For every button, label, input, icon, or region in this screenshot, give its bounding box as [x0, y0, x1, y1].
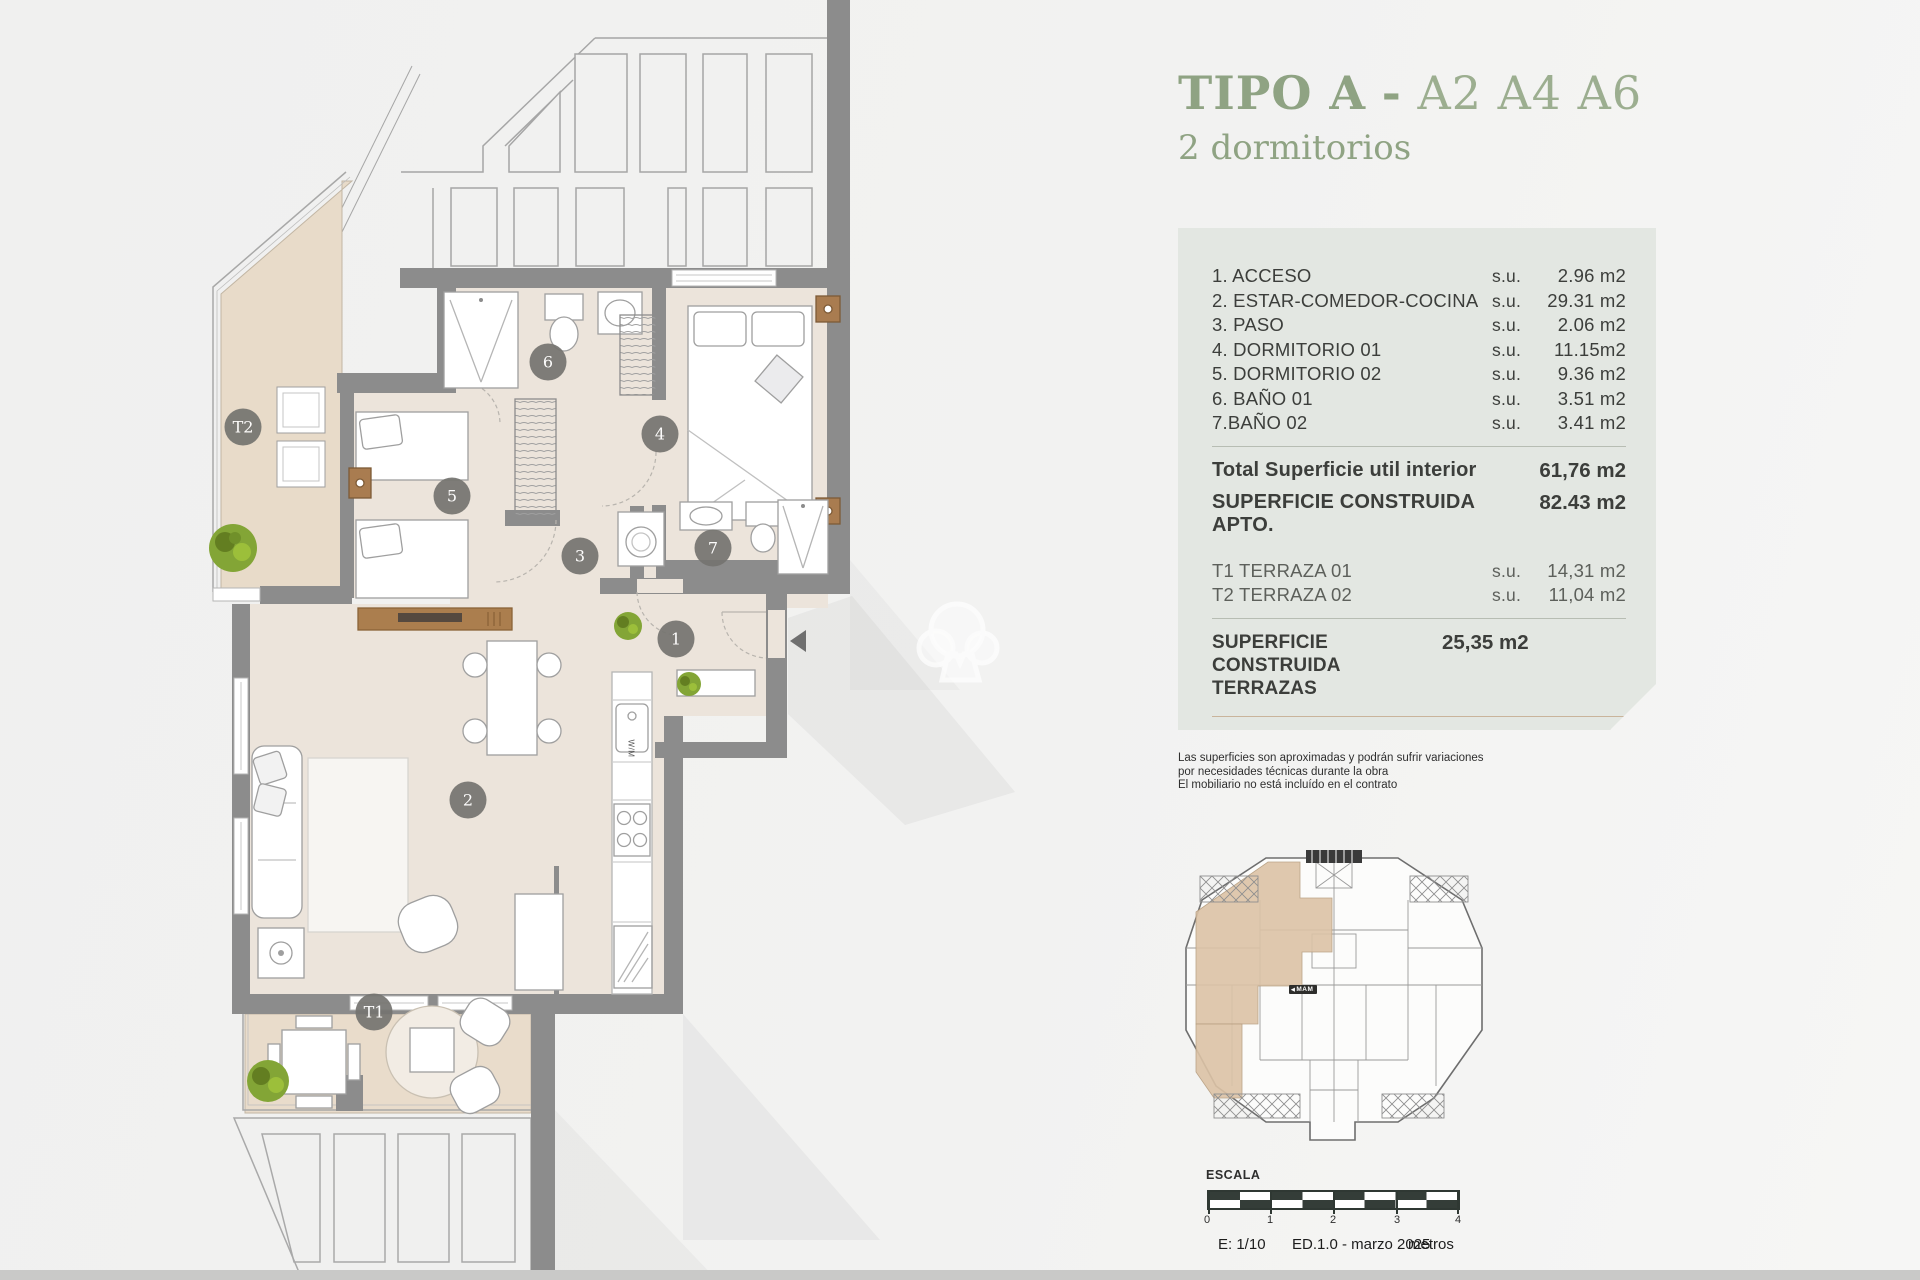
builder-logo: ◀ MAM	[1289, 985, 1317, 994]
surfaces-panel: 1. ACCESOs.u.2.96 m2 2. ESTAR-COMEDOR-CO…	[1178, 228, 1656, 730]
badge-terrace-t2: T2	[225, 409, 262, 446]
badge-terrace-t1: T1	[356, 994, 393, 1031]
divider	[1212, 618, 1626, 619]
room-row: 6. BAÑO 01s.u.3.51 m2	[1212, 387, 1626, 412]
disclaimer: Las superficies son aproximadas y podrán…	[1178, 752, 1484, 793]
washer-label: W/M	[626, 740, 635, 758]
scale-ratio: E: 1/10	[1218, 1236, 1266, 1253]
room-row: 2. ESTAR-COMEDOR-COCINAs.u.29.31 m2	[1212, 289, 1626, 314]
badge-room-6: 6	[530, 344, 567, 381]
unit-codes: A2 A4 A6	[1417, 66, 1642, 120]
type-name: TIPO A	[1178, 66, 1366, 120]
scale-bar	[1207, 1190, 1460, 1210]
room-row: 7.BAÑO 02s.u.3.41 m2	[1212, 411, 1626, 436]
room-row: 1. ACCESOs.u.2.96 m2	[1212, 264, 1626, 289]
scale-tick-1: 1	[1267, 1214, 1273, 1226]
construida-row: SUPERFICIE CONSTRUIDA APTO. 82.43 m2	[1212, 491, 1626, 537]
room-row: 5. DORMITORIO 02s.u.9.36 m2	[1212, 362, 1626, 387]
room-row: 4. DORMITORIO 01s.u.11.15m2	[1212, 338, 1626, 363]
floorplan-sheet: T2 6 4 5 3 7 1 2 T1 W/M TIPO A - A2 A4 A…	[0, 0, 1920, 1280]
planter-strip	[234, 1118, 531, 1277]
total-util-row: Total Superficie util interior 61,76 m2	[1212, 459, 1626, 483]
badge-room-4: 4	[642, 416, 679, 453]
neighbour-structures	[334, 38, 827, 268]
scale-unit: metros	[1408, 1236, 1454, 1253]
terrace-row: T2 TERRAZA 02s.u.11,04 m2	[1212, 583, 1626, 608]
keyplan	[1186, 850, 1482, 1140]
scale-title: ESCALA	[1206, 1168, 1260, 1182]
page-title: TIPO A - A2 A4 A6	[1178, 66, 1642, 120]
room-row: 3. PASOs.u.2.06 m2	[1212, 313, 1626, 338]
badge-room-5: 5	[434, 478, 471, 515]
page-subtitle: 2 dormitorios	[1178, 128, 1411, 168]
badge-room-7: 7	[695, 530, 732, 567]
scale-tick-3: 3	[1394, 1214, 1400, 1226]
terrace-row: T1 TERRAZA 01s.u.14,31 m2	[1212, 559, 1626, 584]
badge-room-2: 2	[450, 782, 487, 819]
scale-tick-2: 2	[1330, 1214, 1336, 1226]
scale-tick-0: 0	[1204, 1214, 1210, 1226]
logo-arrow-icon: ◀	[1291, 987, 1295, 993]
badge-room-1: 1	[658, 621, 695, 658]
page-footer-strip	[0, 1270, 1920, 1280]
divider	[1212, 716, 1626, 717]
construida-terrazas-row: SUPERFICIE CONSTRUIDA TERRAZAS 25,35 m2	[1212, 631, 1626, 700]
scale-tick-4: 4	[1455, 1214, 1461, 1226]
badge-room-3: 3	[562, 538, 599, 575]
divider	[1212, 446, 1626, 447]
